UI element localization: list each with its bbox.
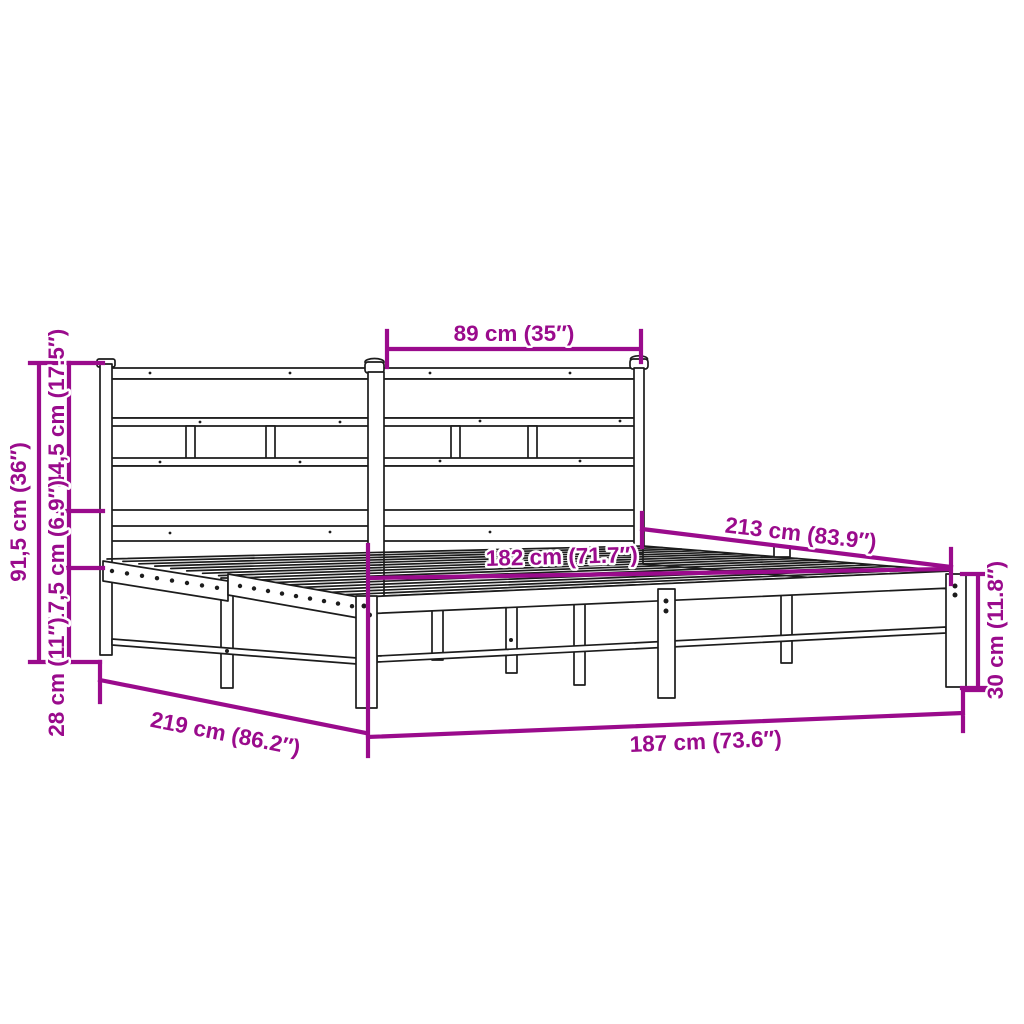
- dim-headboard-section-width-label: 89 cm (35″): [454, 321, 575, 346]
- dim-total-height-label: 91,5 cm (36″): [6, 442, 31, 582]
- dim-total-width: 187 cm (73.6″): [368, 690, 991, 757]
- headboard-spindles: [186, 426, 537, 459]
- dim-headboard-section-width: 89 cm (35″): [387, 321, 641, 367]
- bed-dimension-drawing: 89 cm (35″) 91,5 cm (36″) 44,5 cm (17.5″…: [0, 0, 1024, 1024]
- dim-left-inner-column: 44,5 cm (17.5″) 17,5 cm (6.9″) 28 cm (11…: [44, 329, 103, 737]
- rear-center-leg: [781, 590, 792, 663]
- dim-headboard-panel-height-label: 44,5 cm (17.5″): [44, 329, 69, 487]
- center-front-main-leg: [658, 589, 675, 698]
- dim-frame-height-label: 30 cm (11.8″): [983, 561, 1008, 699]
- left-side-stretcher: [112, 639, 357, 664]
- underframe-stretchers: [112, 627, 946, 664]
- product-dimension-diagram: 89 cm (35″) 91,5 cm (36″) 44,5 cm (17.5″…: [0, 0, 1024, 1024]
- dim-total-width-label: 187 cm (73.6″): [629, 726, 782, 757]
- center-leg-3: [574, 602, 585, 685]
- dim-underbed-clearance-label: 28 cm (11″): [44, 617, 69, 737]
- dim-frame-height: 30 cm (11.8″): [962, 561, 1008, 699]
- dim-panel-to-frame-gap-label: 17,5 cm (6.9″): [44, 480, 69, 626]
- dim-inner-width-label: 182 cm (71.7″): [485, 542, 638, 571]
- front-right-corner-leg: [946, 574, 966, 687]
